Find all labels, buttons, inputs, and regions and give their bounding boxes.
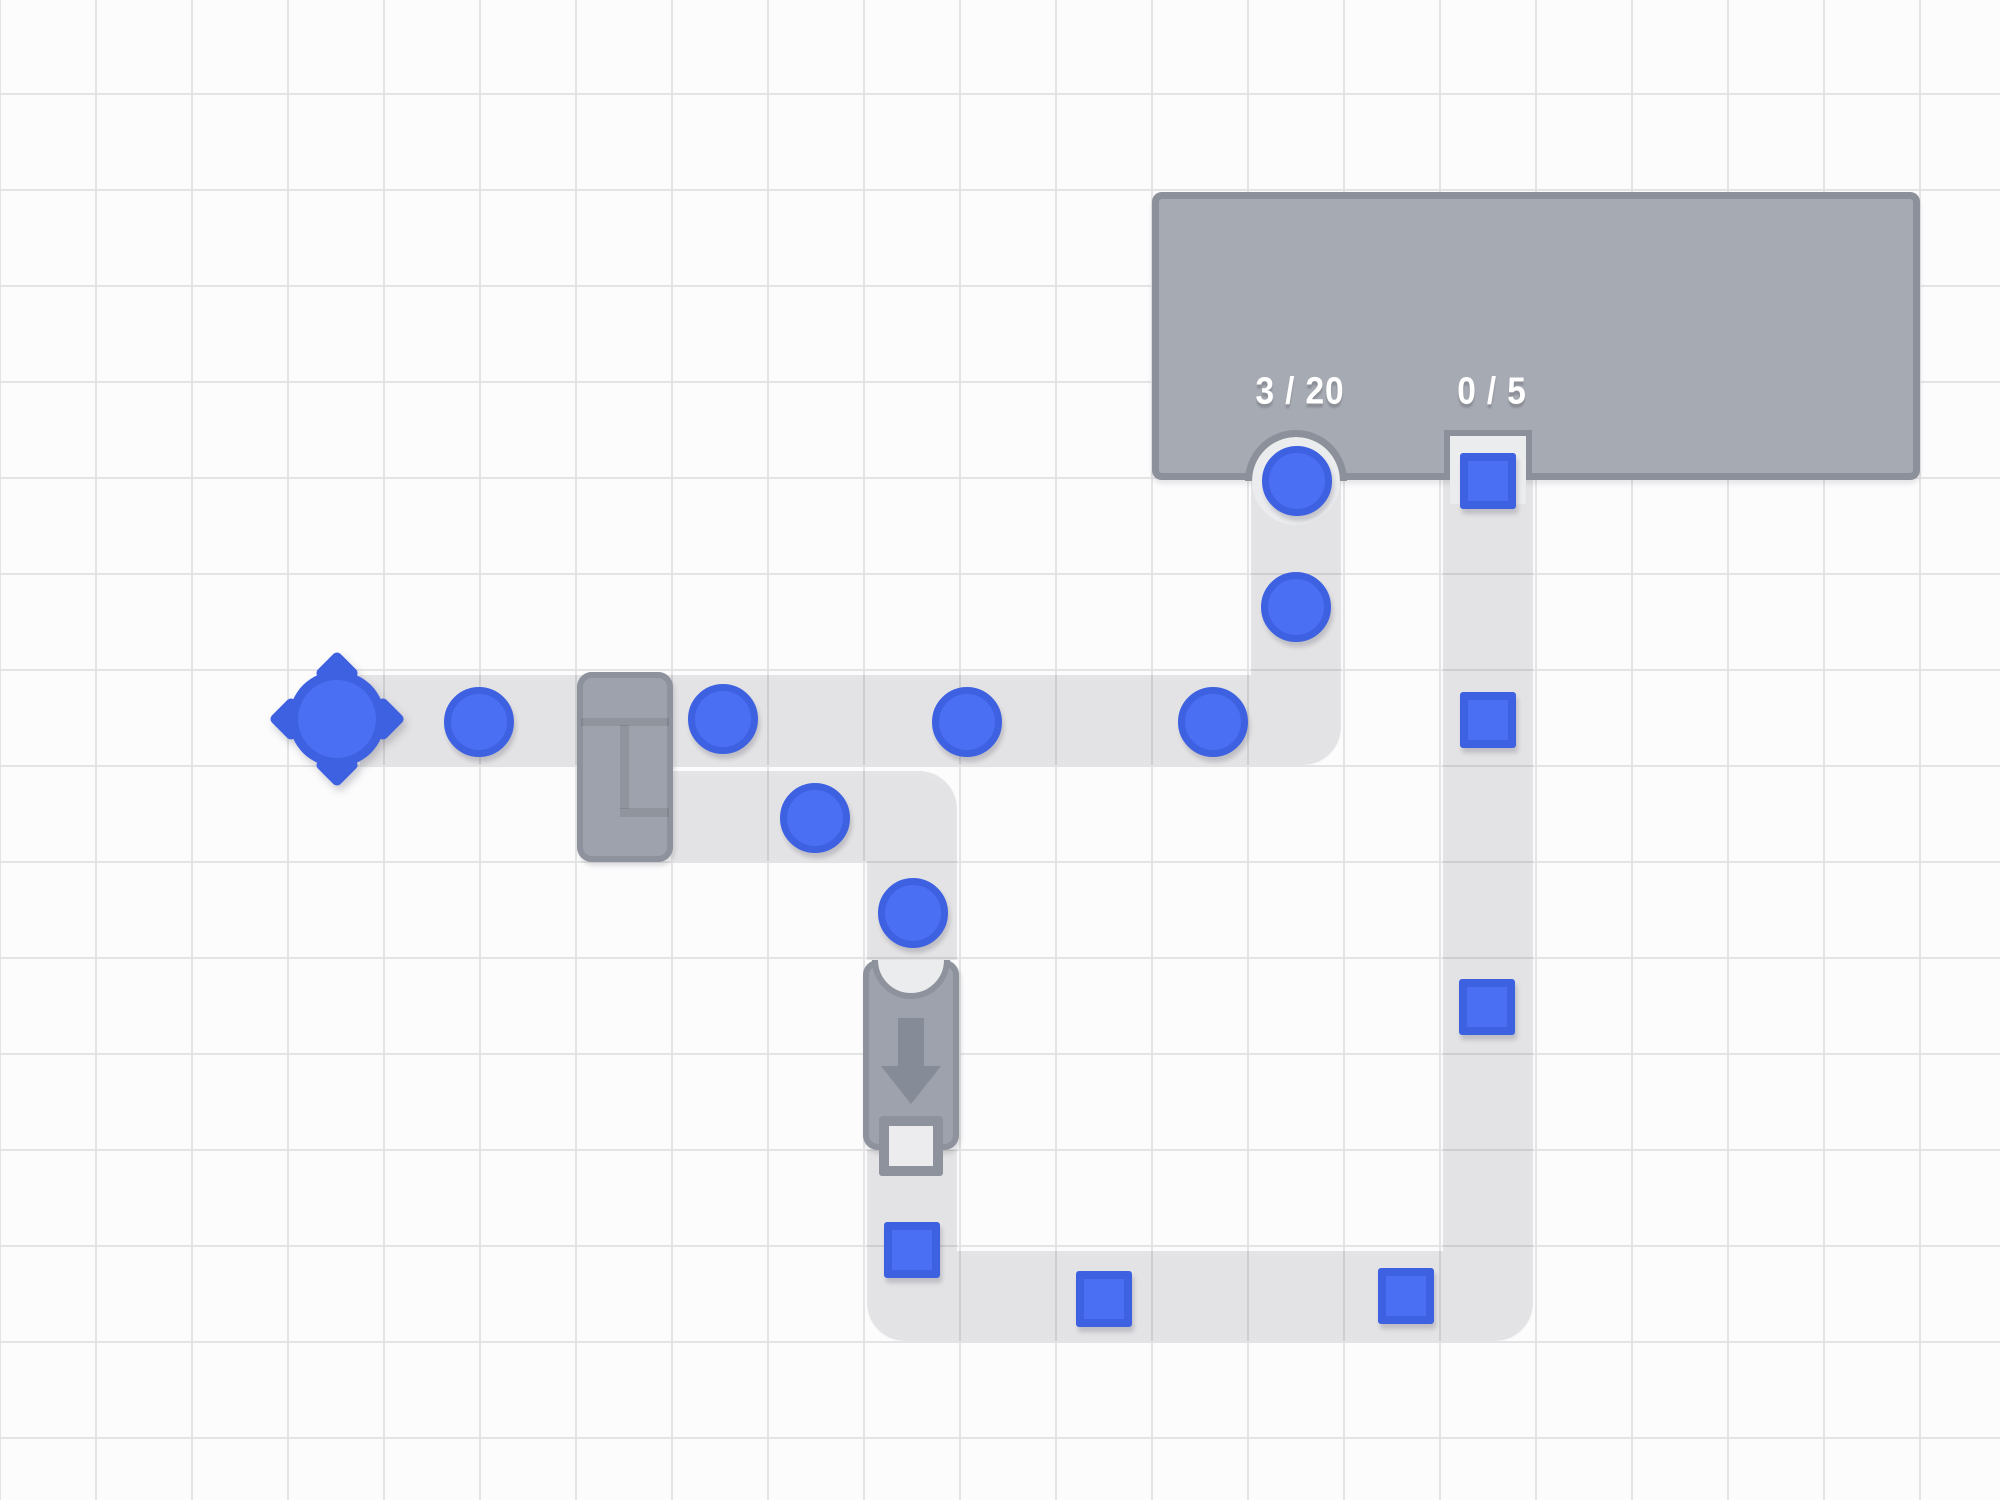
item-circle — [878, 878, 948, 948]
down-arrow-icon — [898, 1018, 924, 1066]
splitter-flow-line-exit — [620, 808, 669, 817]
down-arrow-head-icon — [881, 1066, 941, 1104]
item-circle — [1178, 687, 1248, 757]
splitter-machine[interactable] — [577, 672, 673, 862]
circle-resource-node[interactable] — [267, 649, 407, 789]
item-circle — [1262, 446, 1332, 516]
item-square — [1459, 979, 1515, 1035]
belt-segment[interactable] — [1443, 480, 1533, 1251]
item-square — [1378, 1268, 1434, 1324]
converter-machine[interactable] — [863, 960, 959, 1150]
item-square — [1460, 692, 1516, 748]
item-circle — [932, 687, 1002, 757]
belt-segment[interactable] — [957, 1251, 1443, 1341]
item-circle — [444, 687, 514, 757]
game-world[interactable]: 3 / 20 0 / 5 — [0, 0, 2000, 1500]
item-circle — [780, 783, 850, 853]
splitter-flow-line-vertical — [620, 725, 629, 809]
item-square — [1076, 1271, 1132, 1327]
converter-input-notch-arc — [872, 960, 950, 999]
resource-node-core — [298, 680, 376, 758]
belt-segment[interactable] — [1443, 1251, 1533, 1341]
item-square — [884, 1222, 940, 1278]
item-circle — [1261, 572, 1331, 642]
item-circle — [688, 684, 758, 754]
converter-output-port — [879, 1116, 943, 1176]
item-square — [1460, 453, 1516, 509]
converter-input-notch — [863, 960, 959, 1004]
